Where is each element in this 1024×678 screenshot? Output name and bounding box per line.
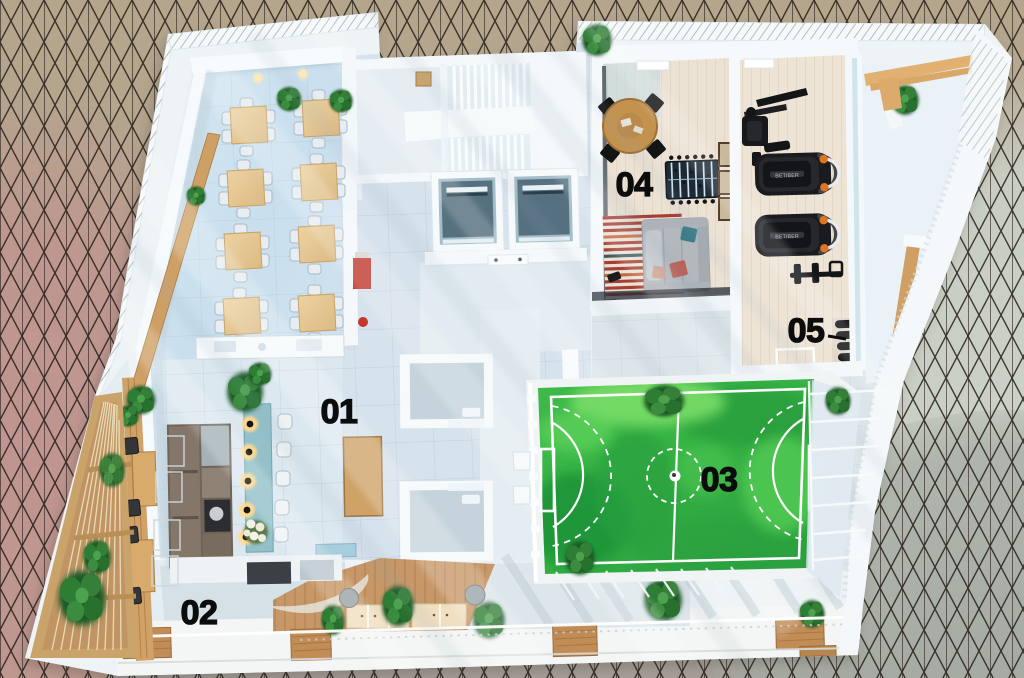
svg-text:BETIBER: BETIBER	[775, 173, 799, 180]
svg-text:04: 04	[616, 166, 653, 204]
svg-text:05: 05	[788, 312, 825, 350]
svg-text:02: 02	[181, 594, 218, 632]
svg-text:03: 03	[701, 461, 738, 499]
svg-text:01: 01	[321, 393, 358, 431]
